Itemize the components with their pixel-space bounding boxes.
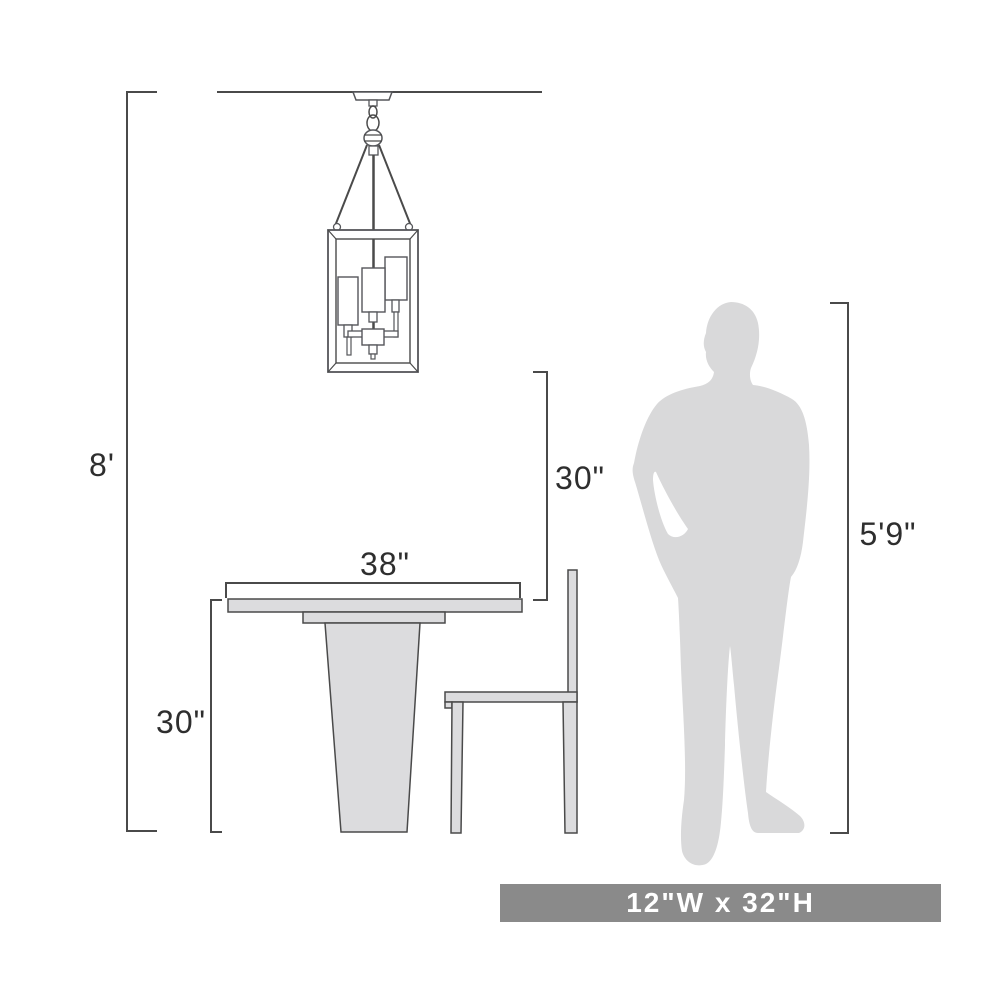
- table-apron: [303, 612, 445, 623]
- chair-back-leg: [563, 702, 577, 833]
- table-pedestal: [325, 623, 420, 832]
- candle-shade-left: [338, 277, 358, 325]
- table-width-dimension-line: [226, 583, 520, 598]
- finial: [369, 345, 377, 354]
- pendant-light-fixture: [328, 92, 418, 372]
- fixture-clearance-label: 30": [545, 460, 615, 497]
- person-silhouette-icon: [633, 302, 810, 865]
- hub: [362, 329, 384, 345]
- table-top: [228, 599, 522, 612]
- suspension-rod-left: [335, 145, 367, 226]
- diagram-linework: [0, 0, 1000, 1000]
- dining-table: [228, 599, 522, 832]
- finial-tip: [371, 354, 375, 359]
- table-width-label: 38": [345, 546, 425, 583]
- person-height-dimension-line: [830, 303, 848, 833]
- chair-seat: [445, 692, 577, 702]
- canopy: [353, 92, 392, 100]
- table-height-label: 30": [146, 704, 216, 741]
- chair-seat-notch: [445, 702, 452, 708]
- dimension-diagram: 8' 38" 30" 30" 5'9" 12"W x 32"H: [0, 0, 1000, 1000]
- person-height-label: 5'9": [843, 516, 933, 553]
- candle-center: [369, 312, 377, 322]
- chair-back-post: [568, 570, 577, 702]
- candle-shade-center: [362, 268, 385, 312]
- candle-right: [392, 300, 399, 312]
- stem-block: [369, 146, 378, 155]
- candle-shade-right: [385, 257, 407, 300]
- ceiling-height-label: 8': [70, 447, 134, 484]
- coupler: [364, 130, 382, 146]
- canopy-stem: [369, 100, 377, 106]
- chair-front-leg: [451, 702, 463, 833]
- fixture-size-banner: 12"W x 32"H: [500, 884, 941, 922]
- candle-rod-left: [347, 337, 351, 355]
- suspension-rod-right: [379, 145, 411, 226]
